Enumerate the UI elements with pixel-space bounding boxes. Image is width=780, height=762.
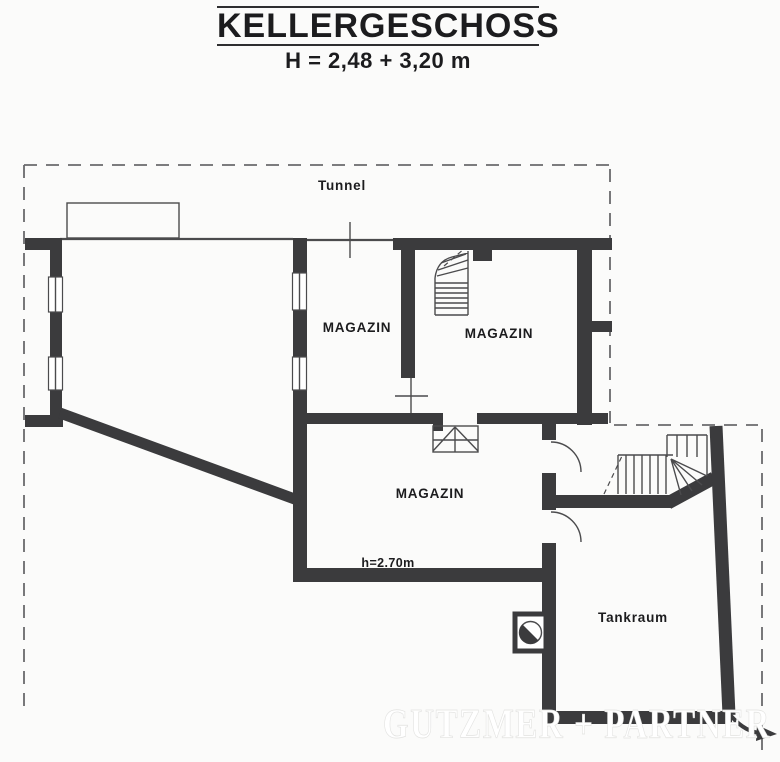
- watermark-text: GUTZMER + PARTNER: [383, 702, 771, 748]
- window-divider-wall-2: [293, 357, 307, 390]
- door-arc-upper: [551, 442, 581, 472]
- window-left-wall-2: [49, 357, 63, 390]
- floor-plan-drawing: Tunnel MAGAZIN MAGAZIN MAGAZIN h=2.70m T…: [0, 0, 780, 762]
- tunnel-retaining-wall-lines: [60, 222, 395, 258]
- window-divider-wall-1: [293, 273, 307, 310]
- floor-plan-page: KELLERGESCHOSS H = 2,48 + 3,20 m: [0, 0, 780, 762]
- window-left-wall-1: [49, 277, 63, 312]
- room-label-magazin-lower: MAGAZIN: [396, 486, 465, 501]
- chimney-symbol: [515, 614, 546, 651]
- door-arc-lower: [551, 512, 581, 542]
- room-label-tankraum: Tankraum: [598, 610, 668, 625]
- room-label-magazin-left: MAGAZIN: [323, 320, 392, 335]
- opening-marks: [395, 377, 428, 416]
- room-label-magazin-upper: MAGAZIN: [465, 326, 534, 341]
- boundary-dashed-line: [24, 165, 762, 752]
- window-symbols: [49, 273, 307, 390]
- height-note: h=2.70m: [361, 556, 414, 570]
- room-label-tunnel: Tunnel: [318, 178, 366, 193]
- stair-upper: [435, 249, 468, 315]
- light-well-outline: [67, 203, 179, 238]
